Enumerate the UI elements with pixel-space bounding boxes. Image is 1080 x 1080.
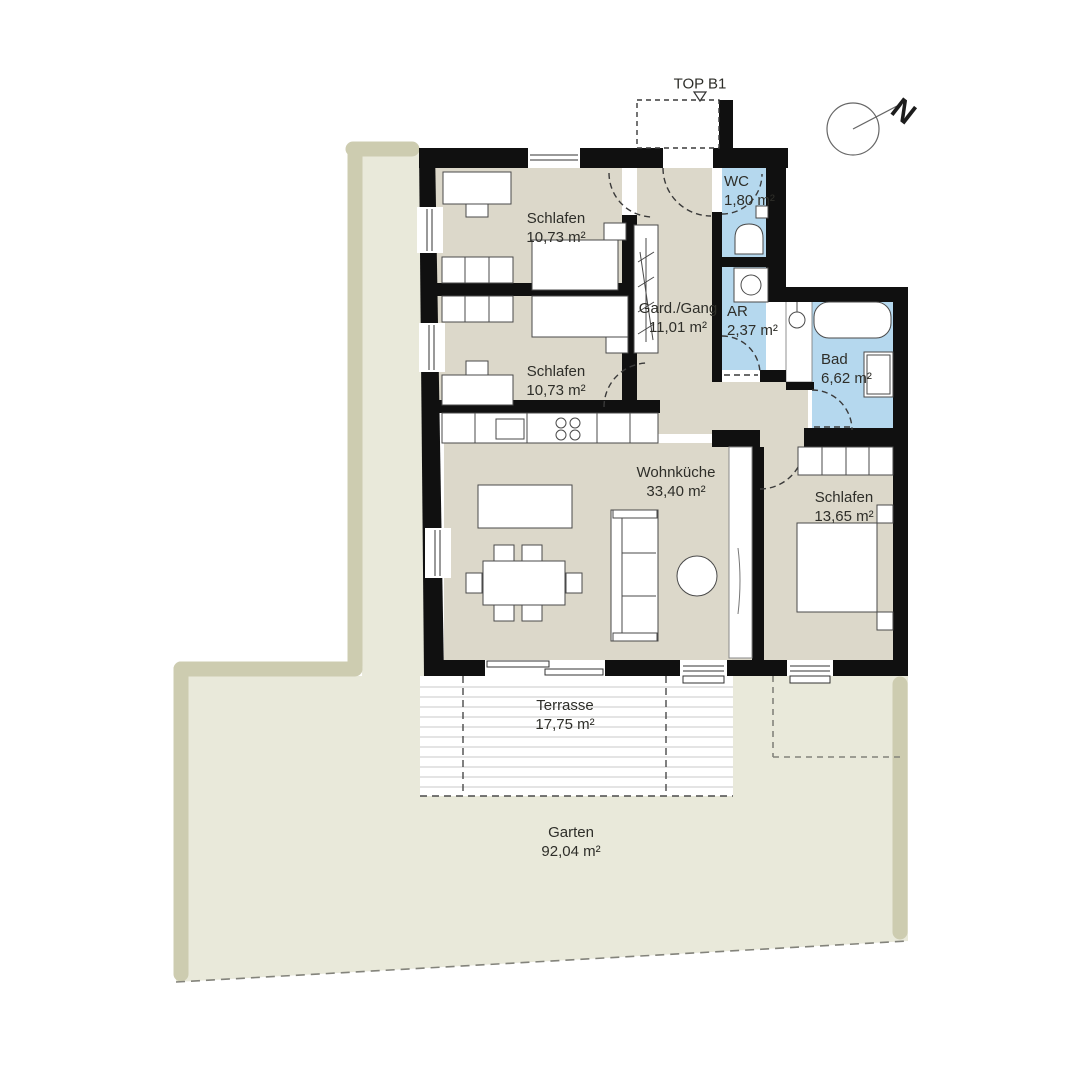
room-name: AR	[727, 302, 778, 321]
wall-entry-stub	[719, 100, 733, 148]
floor-plan-page: TOP B1 N Schlafen 10,73 m² Schlafen 10,7…	[0, 0, 1080, 1080]
room-area: 11,01 m²	[639, 318, 717, 337]
room-area: 10,73 m²	[526, 228, 585, 247]
sliding-door-leaf	[729, 447, 752, 658]
entry-landing-dashed	[637, 100, 719, 148]
window-schlafen1-top	[528, 148, 580, 168]
window-schlafen3-bottom	[787, 660, 833, 683]
room-area: 6,62 m²	[821, 369, 872, 388]
toilet-icon	[735, 224, 763, 254]
window-schlafen1-left	[417, 207, 443, 253]
room-name: Schlafen	[814, 488, 873, 507]
chair-icon	[466, 204, 488, 217]
nightstand-icon	[877, 505, 893, 523]
wall-partition-wohnkueche-schlafen3	[752, 443, 764, 660]
window-wohnkueche-bottom	[680, 660, 727, 683]
room-name: Schlafen	[526, 209, 585, 228]
room-area: 2,37 m²	[727, 321, 778, 340]
north-compass-icon	[827, 103, 897, 155]
washing-machine-icon	[734, 268, 768, 302]
window-wohnkueche-left	[425, 528, 451, 578]
kitchen-counter-icon	[442, 413, 658, 443]
room-name: Schlafen	[526, 362, 585, 381]
room-label-schlafen2: Schlafen 10,73 m²	[526, 362, 585, 400]
bed-icon	[797, 523, 877, 612]
room-label-wc: WC 1,80 m²	[724, 172, 775, 210]
room-area: 92,04 m²	[541, 842, 600, 861]
desk-icon	[443, 172, 511, 204]
room-name: Garten	[541, 823, 600, 842]
bed-icon	[532, 296, 628, 337]
nightstand-icon	[606, 337, 628, 353]
kitchen-island-icon	[478, 485, 572, 528]
wardrobe-icon	[798, 447, 893, 475]
sofa-icon	[611, 510, 658, 641]
room-area: 13,65 m²	[814, 507, 873, 526]
room-name: Gard./Gang	[639, 299, 717, 318]
room-label-gang: Gard./Gang 11,01 m²	[639, 299, 717, 337]
room-area: 1,80 m²	[724, 191, 775, 210]
floor-plan-drawing	[0, 0, 1080, 1080]
room-area: 17,75 m²	[535, 715, 594, 734]
room-area: 10,73 m²	[526, 381, 585, 400]
sliding-door-terrace	[485, 660, 605, 676]
window-schlafen2-left	[419, 323, 445, 372]
room-label-garten: Garten 92,04 m²	[541, 823, 600, 861]
room-name: WC	[724, 172, 775, 191]
desk-icon	[442, 375, 513, 405]
bed-icon	[532, 240, 618, 290]
room-label-ar: AR 2,37 m²	[727, 302, 778, 340]
nightstand-icon	[604, 223, 626, 240]
terrace-area	[420, 676, 733, 796]
bathtub-icon	[814, 302, 891, 338]
room-name: Bad	[821, 350, 872, 369]
plan-title: TOP B1	[674, 76, 727, 93]
chair-icon	[466, 361, 488, 375]
room-label-schlafen3: Schlafen 13,65 m²	[814, 488, 873, 526]
room-name: Wohnküche	[637, 463, 716, 482]
nightstand-icon	[877, 612, 893, 630]
room-area: 33,40 m²	[637, 482, 716, 501]
room-label-terrasse: Terrasse 17,75 m²	[535, 696, 594, 734]
wardrobe-icon	[442, 296, 513, 322]
side-table-icon	[677, 556, 717, 596]
room-label-wohnkueche: Wohnküche 33,40 m²	[637, 463, 716, 501]
room-label-schlafen1: Schlafen 10,73 m²	[526, 209, 585, 247]
room-name: Terrasse	[535, 696, 594, 715]
room-label-bad: Bad 6,62 m²	[821, 350, 872, 388]
wardrobe-icon	[442, 257, 513, 283]
kitchen-sink-icon	[496, 419, 524, 439]
